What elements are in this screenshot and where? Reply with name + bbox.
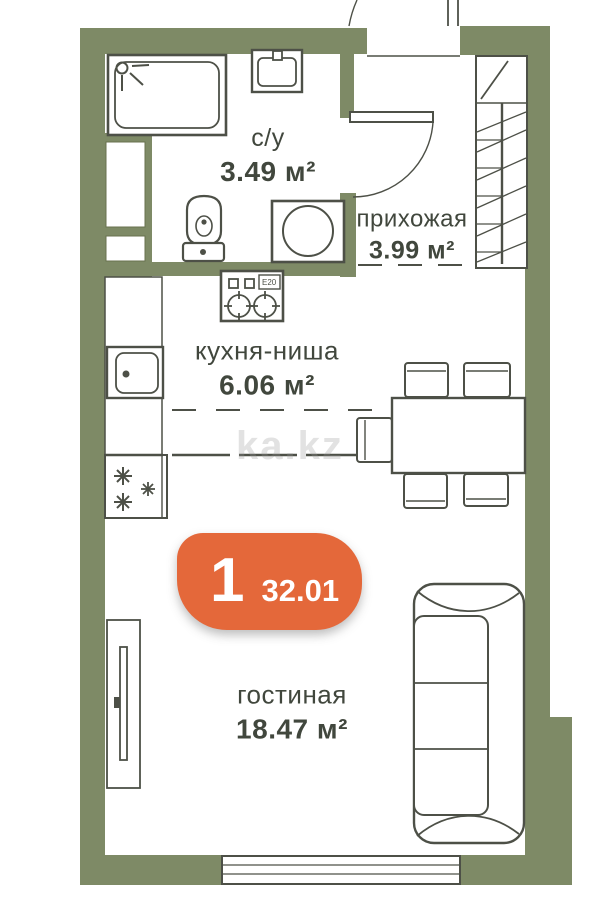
snowflake-icon <box>141 482 155 496</box>
room-name-living: гостиная <box>236 680 348 710</box>
vent-shaft <box>106 236 145 261</box>
chair <box>464 363 510 397</box>
bathroom-door-leaf <box>350 112 433 122</box>
room-name-hallway: прихожая <box>357 205 468 233</box>
room-name-bathroom: с/у <box>220 124 316 153</box>
badge-rooms-count: 1 <box>210 550 244 612</box>
dining-group <box>357 363 525 508</box>
room-label-living: гостиная 18.47 м² <box>236 680 348 745</box>
floor-plan: E20 <box>0 0 600 900</box>
room-area-hallway: 3.99 м² <box>357 236 468 265</box>
kitchen-sink <box>107 347 163 398</box>
dining-table <box>392 398 525 473</box>
tv-unit <box>107 620 140 788</box>
chair <box>464 474 508 506</box>
washing-machine <box>272 201 344 262</box>
toilet <box>183 196 224 261</box>
tv-mount <box>114 697 120 708</box>
wall-right-upper <box>525 26 550 717</box>
wardrobe <box>476 56 527 268</box>
vent-shafts <box>106 142 145 261</box>
chair <box>405 363 448 397</box>
chair <box>404 474 447 508</box>
entrance-door-swing-arc <box>349 0 357 26</box>
vent-shaft <box>106 142 145 227</box>
sofa-seat <box>414 616 488 815</box>
room-label-hallway: прихожая 3.99 м² <box>357 205 468 264</box>
room-label-kitchen: кухня-ниша 6.06 м² <box>195 336 339 401</box>
bathroom-sink <box>252 50 302 92</box>
room-label-bathroom: с/у 3.49 м² <box>220 124 316 188</box>
fridge <box>105 455 167 518</box>
room-area-bathroom: 3.49 м² <box>220 156 316 188</box>
faucet-icon <box>123 371 130 378</box>
badge-total-area: 32.01 <box>261 575 339 606</box>
stove: E20 <box>221 271 283 321</box>
room-area-kitchen: 6.06 м² <box>195 369 339 401</box>
room-name-kitchen: кухня-ниша <box>195 336 339 366</box>
chair <box>357 418 392 462</box>
bathtub <box>108 55 226 135</box>
faucet-icon <box>273 51 282 60</box>
tv-panel <box>120 647 127 760</box>
window <box>222 856 460 884</box>
partition-kitchen <box>80 262 342 276</box>
bathroom-door-swing-arc <box>353 122 433 197</box>
partition-bath-hall-upper <box>340 54 354 118</box>
bathroom-door <box>350 112 433 197</box>
wall-top-left <box>80 28 367 54</box>
room-area-living: 18.47 м² <box>236 713 348 745</box>
apartment-badge: 1 32.01 <box>177 533 362 630</box>
sofa <box>414 584 524 843</box>
stove-label: E20 <box>262 278 277 287</box>
watermark: ka.kz <box>236 424 344 469</box>
